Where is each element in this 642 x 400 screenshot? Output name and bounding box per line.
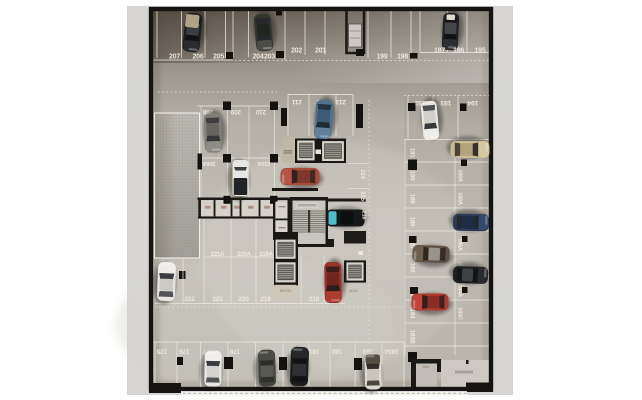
- svg-text:188A: 188A: [457, 192, 463, 205]
- svg-text:194: 194: [467, 99, 478, 106]
- svg-text:MOTOS: MOTOS: [280, 289, 292, 293]
- svg-text:195: 195: [474, 48, 485, 55]
- svg-text:210A: 210A: [256, 160, 270, 166]
- svg-text:222: 222: [184, 296, 195, 303]
- svg-text:203: 203: [264, 54, 275, 61]
- svg-text:184: 184: [409, 309, 416, 319]
- svg-text:218: 218: [309, 296, 320, 303]
- svg-text:BICIC.: BICIC.: [349, 289, 359, 293]
- svg-text:188: 188: [409, 217, 416, 227]
- svg-text:209: 209: [230, 108, 241, 115]
- svg-text:193: 193: [440, 99, 451, 106]
- svg-text:197: 197: [434, 48, 445, 55]
- svg-text:220: 220: [238, 296, 249, 303]
- svg-text:207: 207: [169, 54, 180, 61]
- svg-text:176: 176: [179, 348, 190, 355]
- svg-text:189: 189: [409, 194, 416, 204]
- svg-text:219A: 219A: [259, 252, 273, 258]
- svg-text:183C: 183C: [457, 307, 463, 320]
- svg-text:221: 221: [212, 296, 223, 303]
- svg-text:198: 198: [397, 54, 408, 61]
- svg-text:196: 196: [453, 48, 464, 55]
- svg-text:220A: 220A: [237, 252, 251, 258]
- svg-text:183: 183: [362, 348, 373, 355]
- svg-text:219: 219: [260, 296, 271, 303]
- svg-text:186: 186: [409, 263, 416, 273]
- svg-text:175: 175: [156, 348, 167, 355]
- svg-text:202: 202: [291, 48, 302, 55]
- svg-text:213: 213: [335, 98, 346, 105]
- svg-text:DML: DML: [423, 365, 430, 369]
- svg-text:183A: 183A: [384, 348, 399, 355]
- svg-text:199: 199: [376, 54, 387, 61]
- svg-text:183B: 183B: [409, 330, 416, 345]
- svg-text:191: 191: [409, 148, 416, 158]
- svg-text:186A: 186A: [457, 238, 463, 251]
- svg-text:182: 182: [331, 348, 342, 355]
- svg-text:205: 205: [213, 54, 224, 61]
- svg-text:210: 210: [255, 108, 266, 115]
- svg-text:216: 216: [361, 211, 367, 220]
- svg-text:211: 211: [292, 98, 302, 105]
- svg-text:206: 206: [192, 54, 203, 61]
- svg-text:190: 190: [409, 171, 416, 181]
- svg-text:201: 201: [315, 48, 326, 55]
- svg-text:178: 178: [229, 348, 240, 355]
- svg-text:184A: 184A: [457, 284, 463, 297]
- svg-text:189A: 189A: [457, 169, 463, 182]
- svg-text:204: 204: [252, 54, 263, 61]
- svg-text:208A: 208A: [201, 160, 215, 166]
- svg-text:221A: 221A: [211, 252, 225, 258]
- svg-text:214: 214: [359, 169, 365, 179]
- svg-text:215: 215: [359, 191, 365, 201]
- svg-text:181: 181: [309, 348, 320, 355]
